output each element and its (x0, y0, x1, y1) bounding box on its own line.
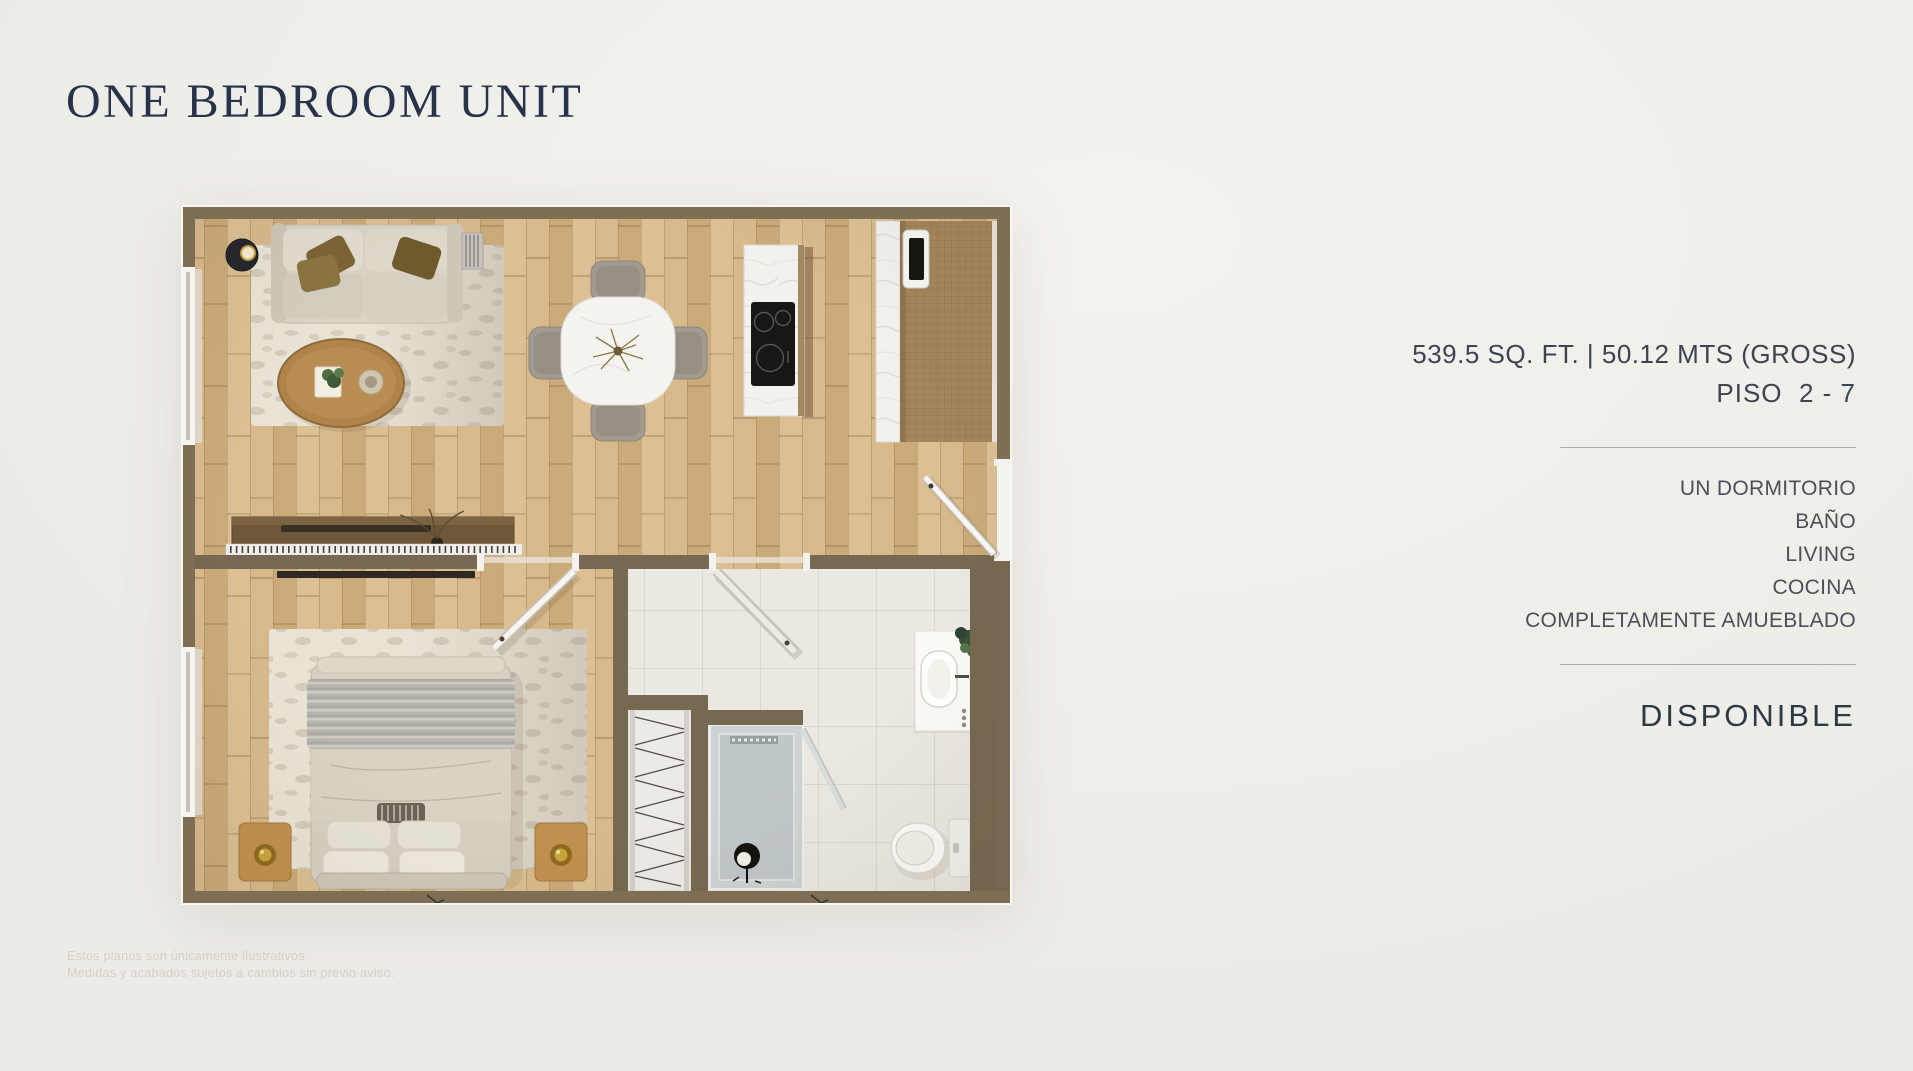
divider (1560, 664, 1856, 665)
feature-list: UN DORMITORIO BAÑO LIVING COCINA COMPLET… (1296, 472, 1856, 637)
availability-status: DISPONIBLE (1296, 698, 1856, 734)
floor-plan (181, 205, 1012, 905)
feature-item: UN DORMITORIO (1296, 472, 1856, 505)
unit-floors: PISO 2 - 7 (1296, 377, 1856, 409)
unit-details: 539.5 SQ. FT. | 50.12 MTS (GROSS) PISO 2… (1296, 338, 1856, 734)
disclaimer-line: Estos planos son únicamente ilustrativos… (67, 948, 394, 965)
feature-item: COMPLETAMENTE AMUEBLADO (1296, 604, 1856, 637)
vignette (195, 219, 997, 891)
disclaimer: Estos planos son únicamente ilustrativos… (67, 948, 394, 982)
page-title: ONE BEDROOM UNIT (66, 74, 583, 129)
feature-item: COCINA (1296, 571, 1856, 604)
divider (1560, 447, 1856, 448)
feature-item: BAÑO (1296, 505, 1856, 538)
brochure-page: ONE BEDROOM UNIT (0, 0, 1913, 1071)
disclaimer-line: Medidas y acabados sujetos a cambios sin… (67, 965, 394, 982)
unit-area: 539.5 SQ. FT. | 50.12 MTS (GROSS) (1296, 338, 1856, 370)
feature-item: LIVING (1296, 538, 1856, 571)
floor-plan-svg (181, 205, 1012, 905)
